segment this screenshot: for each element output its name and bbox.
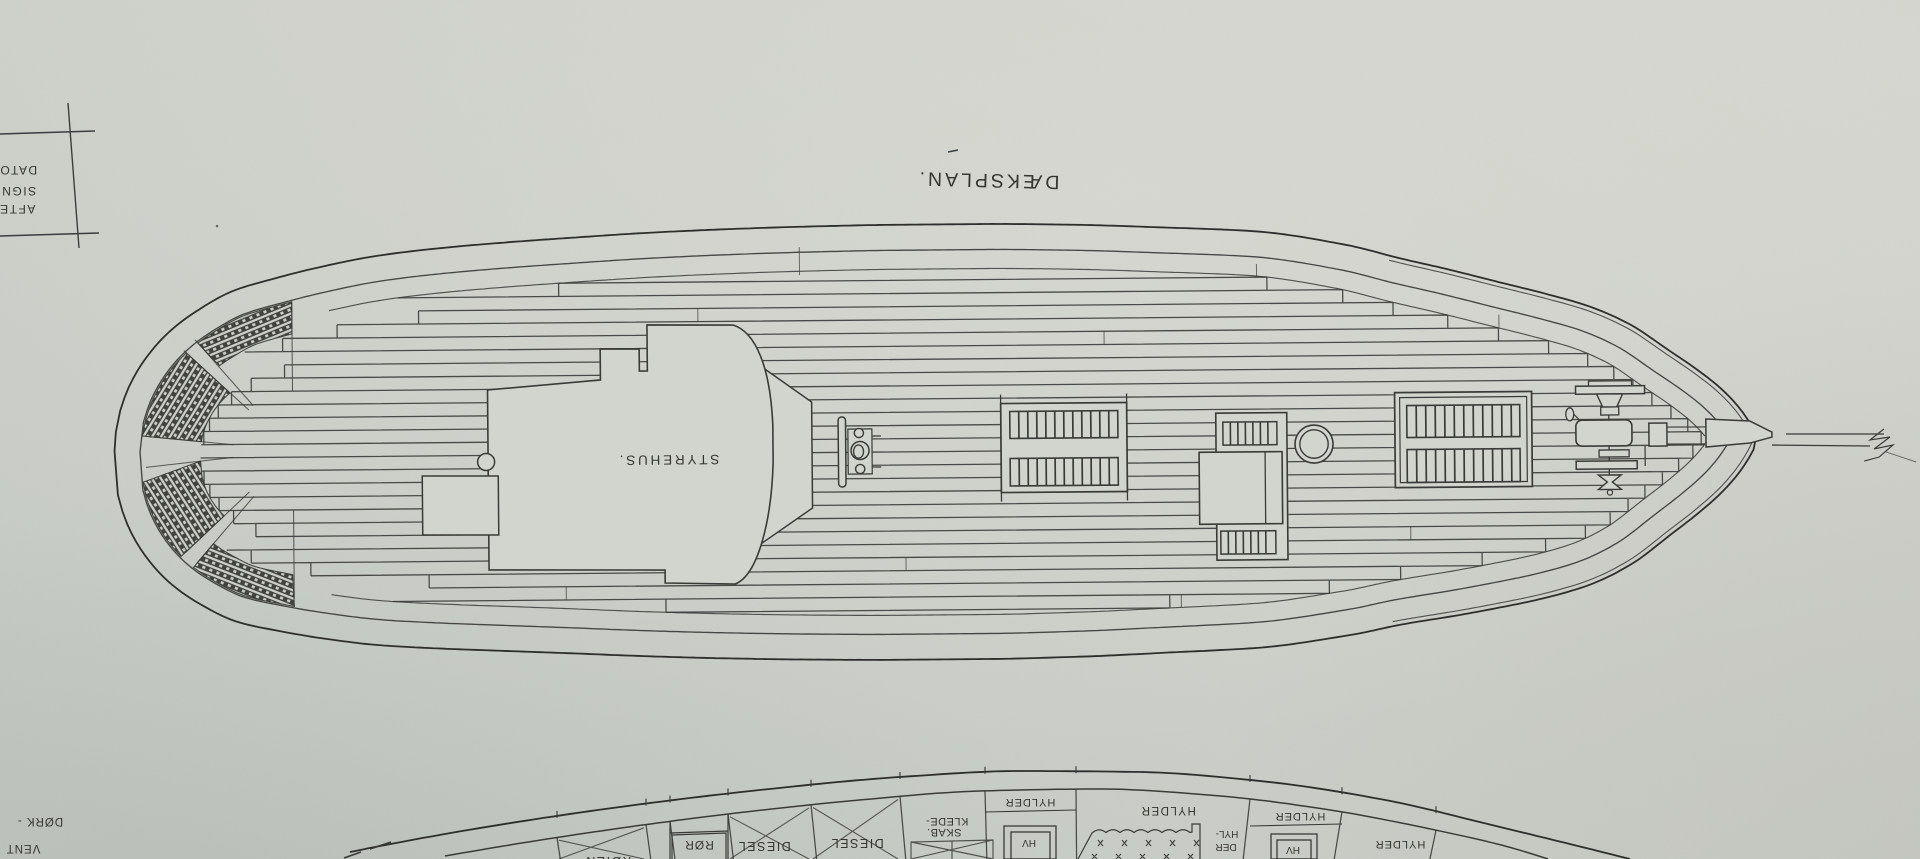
svg-text:AFTE: AFTE	[0, 202, 35, 216]
svg-text:DØRK -: DØRK -	[17, 815, 63, 827]
svg-text:DÆKSPLAN.: DÆKSPLAN.	[916, 167, 1059, 193]
svg-text:STYREHUS.: STYREHUS.	[617, 452, 720, 468]
svg-text:DIESEL: DIESEL	[830, 836, 883, 850]
svg-text:DATO: DATO	[0, 163, 37, 177]
svg-text:HYLDER: HYLDER	[1275, 810, 1326, 822]
svg-text:HYL-: HYL-	[1216, 828, 1239, 839]
svg-text:DIESEL: DIESEL	[737, 839, 790, 853]
svg-text:SIGN.: SIGN.	[0, 184, 36, 198]
svg-text:VENT: VENT	[6, 842, 41, 854]
svg-text:HYLDER: HYLDER	[1005, 796, 1056, 808]
svg-text:HYLDER: HYLDER	[1140, 804, 1196, 816]
svg-text:DER: DER	[1215, 841, 1236, 852]
svg-text:HYLDER: HYLDER	[1375, 838, 1426, 850]
svg-text:SKAB.: SKAB.	[927, 826, 962, 838]
svg-text:HV: HV	[1022, 837, 1036, 848]
svg-text:KLEDE-: KLEDE-	[926, 815, 969, 827]
svg-text:HV: HV	[1286, 844, 1300, 855]
svg-text:KØIEN: KØIEN	[585, 854, 631, 859]
svg-text:RØR: RØR	[684, 838, 714, 852]
